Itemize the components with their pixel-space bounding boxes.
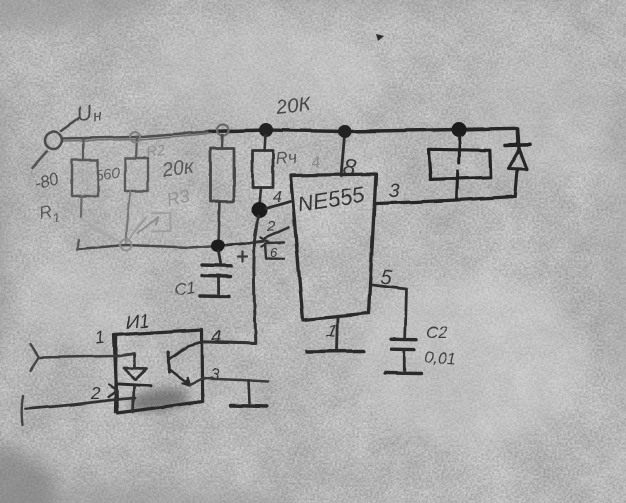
svg-text:6: 6 xyxy=(270,245,278,260)
svg-text:560: 560 xyxy=(94,165,122,185)
svg-text:20К: 20К xyxy=(274,93,312,119)
svg-text:C2: C2 xyxy=(426,323,448,342)
svg-text:4: 4 xyxy=(311,154,321,172)
svg-text:Rч: Rч xyxy=(275,148,298,168)
svg-text:0,01: 0,01 xyxy=(424,349,456,368)
svg-text:4: 4 xyxy=(211,327,221,347)
svg-text:3: 3 xyxy=(210,365,220,384)
svg-text:И1: И1 xyxy=(125,311,151,334)
svg-text:3: 3 xyxy=(388,180,399,202)
svg-text:C1: C1 xyxy=(174,280,196,299)
svg-text:1: 1 xyxy=(94,327,105,347)
svg-text:R2: R2 xyxy=(145,141,167,161)
